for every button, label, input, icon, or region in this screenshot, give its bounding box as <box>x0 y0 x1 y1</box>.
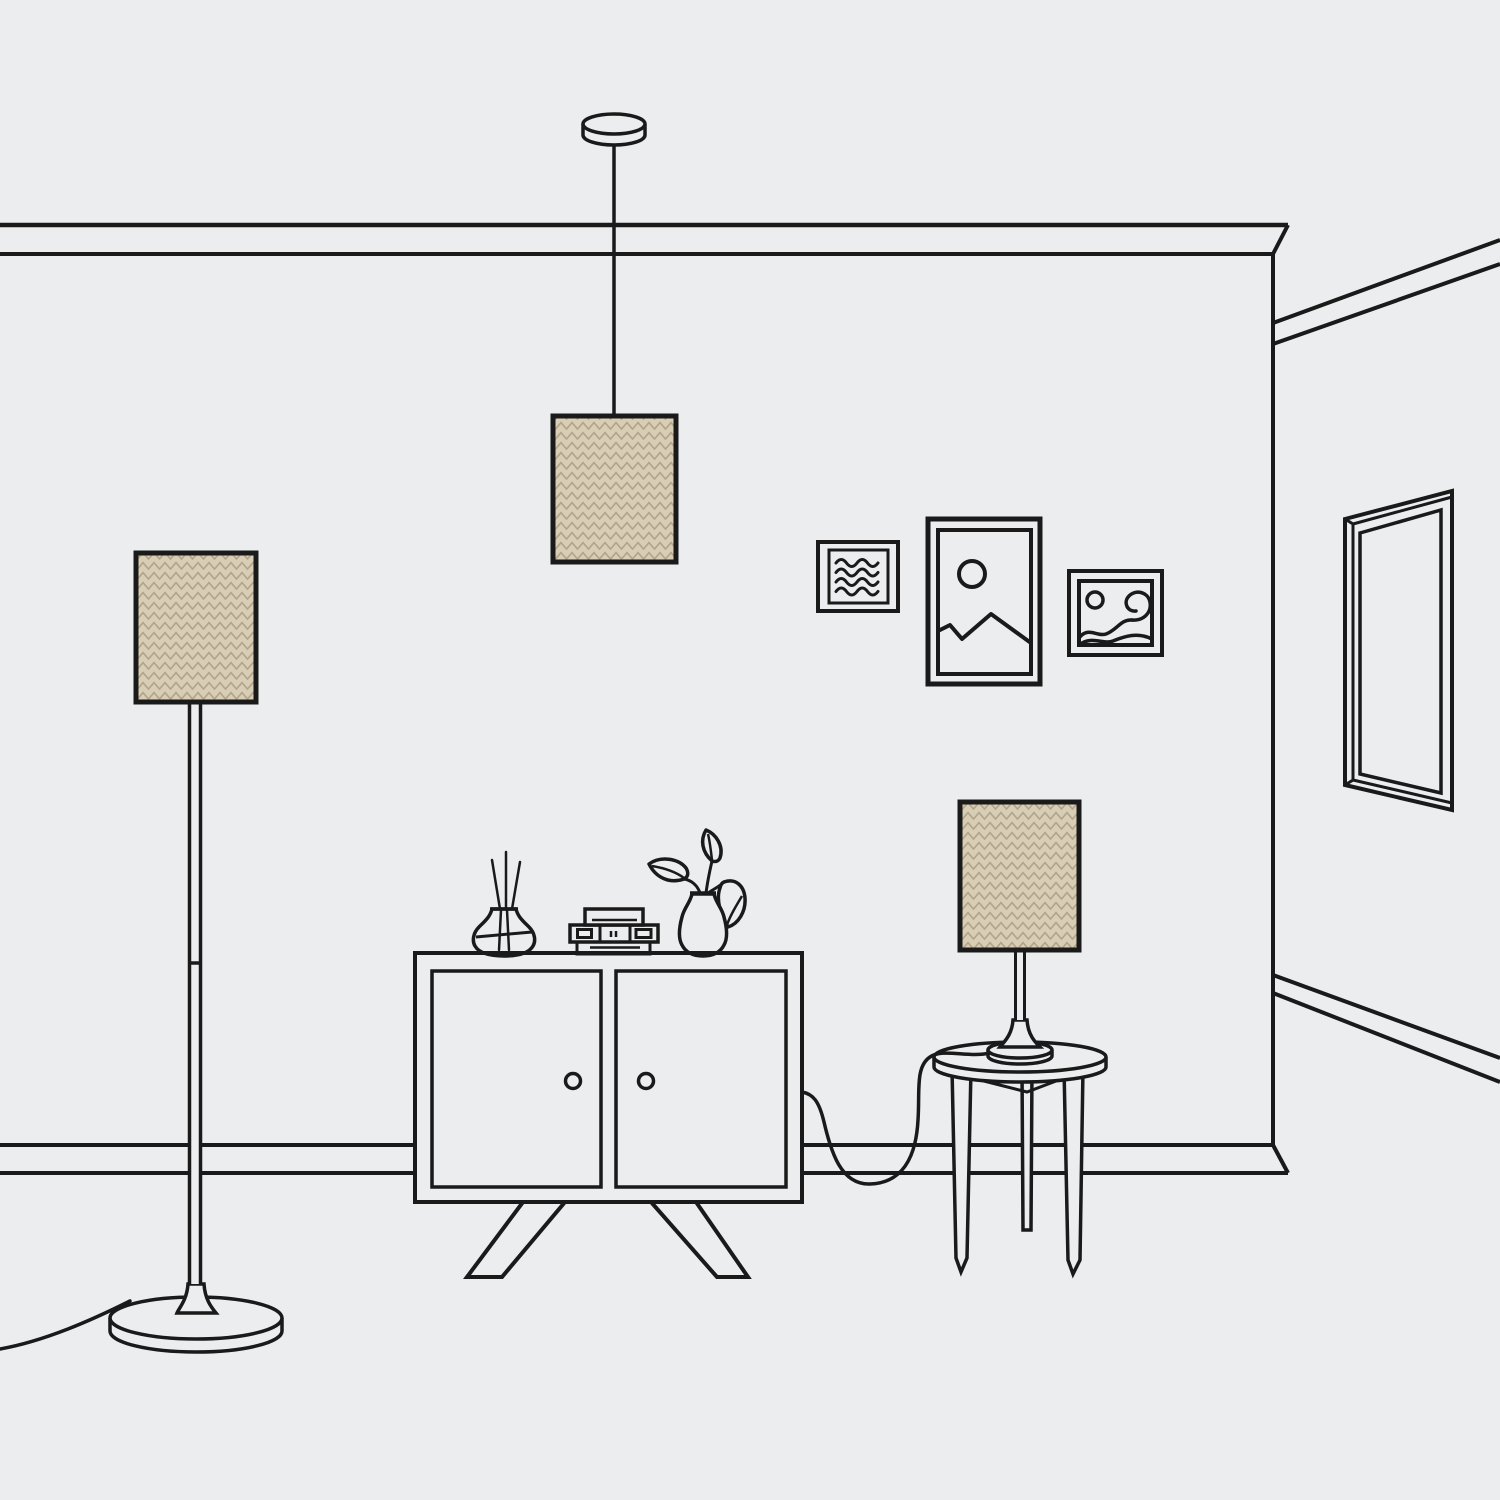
cabinet-right-knob <box>639 1074 654 1089</box>
plant-vase <box>649 830 745 956</box>
pendant-canopy-top <box>583 114 645 134</box>
baseboard-end-cap <box>1273 1145 1288 1173</box>
plant-stem-top <box>706 861 712 893</box>
cabinet-left-knob <box>566 1074 581 1089</box>
table-lamp <box>960 802 1079 1064</box>
floor-lampshade <box>136 553 256 702</box>
radio <box>570 909 658 954</box>
plant-stem-left <box>684 879 700 893</box>
radio-top <box>585 909 643 925</box>
baseboard-right-wall-bottom <box>1273 993 1500 1082</box>
table-lamp-stem-flare <box>1000 1020 1040 1047</box>
frame-waves <box>818 542 898 611</box>
frame-mountain-outer <box>928 519 1040 684</box>
living-room-illustration <box>0 0 1500 1500</box>
crown-right-wall-top <box>1273 240 1500 323</box>
cabinet-right-leg <box>651 1202 748 1277</box>
table-left-leg <box>952 1068 971 1272</box>
cabinet <box>415 953 802 1277</box>
table-lampshade <box>960 802 1079 950</box>
crown-end-cap <box>1273 225 1288 254</box>
side-table <box>934 1042 1106 1274</box>
reed-diffuser <box>473 852 534 956</box>
cabinet-left-leg <box>467 1202 565 1277</box>
floor-lamp <box>0 553 282 1352</box>
frame-mountain <box>928 519 1040 684</box>
pendant-lampshade <box>553 416 676 562</box>
crown-right-wall-bottom <box>1273 264 1500 344</box>
pendant-lamp <box>553 114 676 562</box>
illustration-canvas <box>0 0 1500 1500</box>
baseboard-right-wall-top <box>1273 975 1500 1058</box>
table-right-leg <box>1064 1068 1083 1274</box>
radio-body <box>570 925 658 942</box>
frame-abstract-wave <box>1069 571 1162 655</box>
wall-mirror <box>1345 491 1452 810</box>
plant-vase-body <box>679 894 726 956</box>
